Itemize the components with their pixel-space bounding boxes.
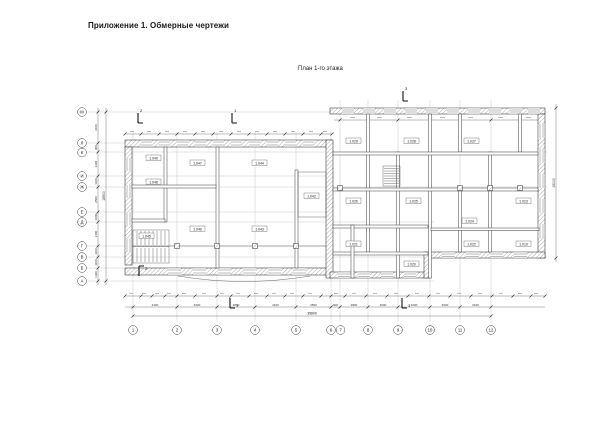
- left-axis-bubbles: М Л К И Ж Е Д Г В Б А: [78, 108, 87, 286]
- axis-label: И: [80, 174, 83, 179]
- dim-value: 1300: [94, 271, 98, 278]
- axis-label: Б: [81, 266, 84, 271]
- dim-overall-right: 15000: [552, 178, 556, 188]
- floor-plan-drawing: 1.049 1.048 1.047 1.046 1.045 1.044 1.04…: [0, 0, 600, 436]
- bottom-axis-bubbles: 1 2 3 4 5 6 7 8 9 10 11 12: [129, 326, 496, 335]
- room-number: 1.020: [407, 262, 416, 266]
- partition-wall: [216, 147, 219, 268]
- dim-value: 900: [333, 303, 338, 307]
- room-number: 1.027: [467, 139, 476, 143]
- vertical-axis-gridlines: [133, 100, 491, 322]
- room-number: 1.048: [149, 180, 158, 184]
- axis-label: В: [81, 255, 84, 260]
- partition-wall: [489, 152, 492, 252]
- left-block-top-wall: [125, 140, 332, 147]
- room-number: 1.024: [465, 219, 474, 223]
- section-label: 1: [234, 108, 237, 113]
- partition-wall: [431, 228, 539, 231]
- partition-wall: [333, 152, 538, 155]
- room-number: 1.028: [407, 139, 416, 143]
- axis-label: Ж: [80, 185, 84, 190]
- partition-wall: [333, 252, 428, 255]
- dim-value: 900: [94, 145, 98, 150]
- room-tags: 1.049 1.048 1.047 1.046 1.045 1.044 1.04…: [139, 138, 531, 267]
- dim-value: 1000: [94, 213, 98, 220]
- partition-wall: [429, 114, 432, 278]
- partition-wall: [164, 147, 167, 222]
- section-label: 2: [140, 108, 143, 113]
- entrance-arc: [178, 276, 310, 282]
- partition-wall: [295, 170, 298, 268]
- room-number: 1.029: [349, 139, 358, 143]
- room-number: 1.025: [409, 199, 418, 203]
- axis-label: Л: [81, 141, 84, 146]
- dim-overall: 16900: [102, 191, 106, 201]
- axis-label: Е: [81, 210, 84, 215]
- dim-value: 3000: [380, 303, 387, 307]
- room-number: 1.019: [519, 242, 528, 246]
- dim-value: 1100: [94, 178, 98, 185]
- partition-wall: [367, 114, 370, 252]
- partition-wall: [333, 225, 428, 228]
- room-number: 1.045: [142, 234, 151, 238]
- dim-value: 3500: [310, 303, 317, 307]
- drawing-page: Приложение 1. Обмерные чертежи План 1-го…: [0, 0, 600, 436]
- dim-value: 2400: [94, 160, 98, 167]
- room-number: 1.044: [255, 161, 264, 165]
- room-number: 1.047: [193, 161, 202, 165]
- dim-value: 2800: [351, 303, 358, 307]
- dim-value: 4400: [152, 303, 159, 307]
- dim-value: 3100: [94, 124, 98, 131]
- dim-value: 3000: [442, 303, 449, 307]
- partition-wall: [459, 190, 462, 252]
- dim-value: 1100: [94, 248, 98, 255]
- axis-label: А: [81, 279, 84, 284]
- room-number: 1.043: [255, 227, 264, 231]
- left-span-dimensions: 3100 900 2400 1100 2500 1000 2400 1100 1…: [94, 124, 106, 278]
- axis-label: Д: [81, 220, 84, 225]
- partition-wall: [351, 225, 354, 278]
- dim-value: 3200: [411, 303, 418, 307]
- axis-label: 11: [458, 328, 463, 333]
- partition-wall: [519, 114, 522, 152]
- center-shared-wall: [326, 140, 333, 278]
- room-number: 1.023: [519, 199, 528, 203]
- partition-wall: [132, 219, 165, 222]
- dim-overall: 35800: [307, 312, 317, 316]
- room-number: 1.022: [467, 242, 476, 246]
- room-number: 1.021: [349, 242, 358, 246]
- room-number: 1.042: [307, 194, 316, 198]
- section-label: 3: [405, 86, 408, 91]
- dim-value: 2400: [94, 230, 98, 237]
- dim-value: 4100: [272, 303, 279, 307]
- room-number: 1.046: [193, 227, 202, 231]
- dim-value: 1100: [94, 259, 98, 266]
- axis-label: 12: [489, 328, 494, 333]
- dim-value: 2500: [94, 196, 98, 203]
- dim-value: 3100: [472, 303, 479, 307]
- partition-wall: [459, 114, 462, 152]
- room-number: 1.026: [349, 199, 358, 203]
- axis-label: 10: [428, 328, 433, 333]
- partition-wall: [132, 185, 216, 188]
- axis-label: М: [80, 110, 84, 115]
- dim-value: 4000: [194, 303, 201, 307]
- partition-wall: [333, 188, 538, 191]
- room-number: 1.049: [149, 156, 158, 160]
